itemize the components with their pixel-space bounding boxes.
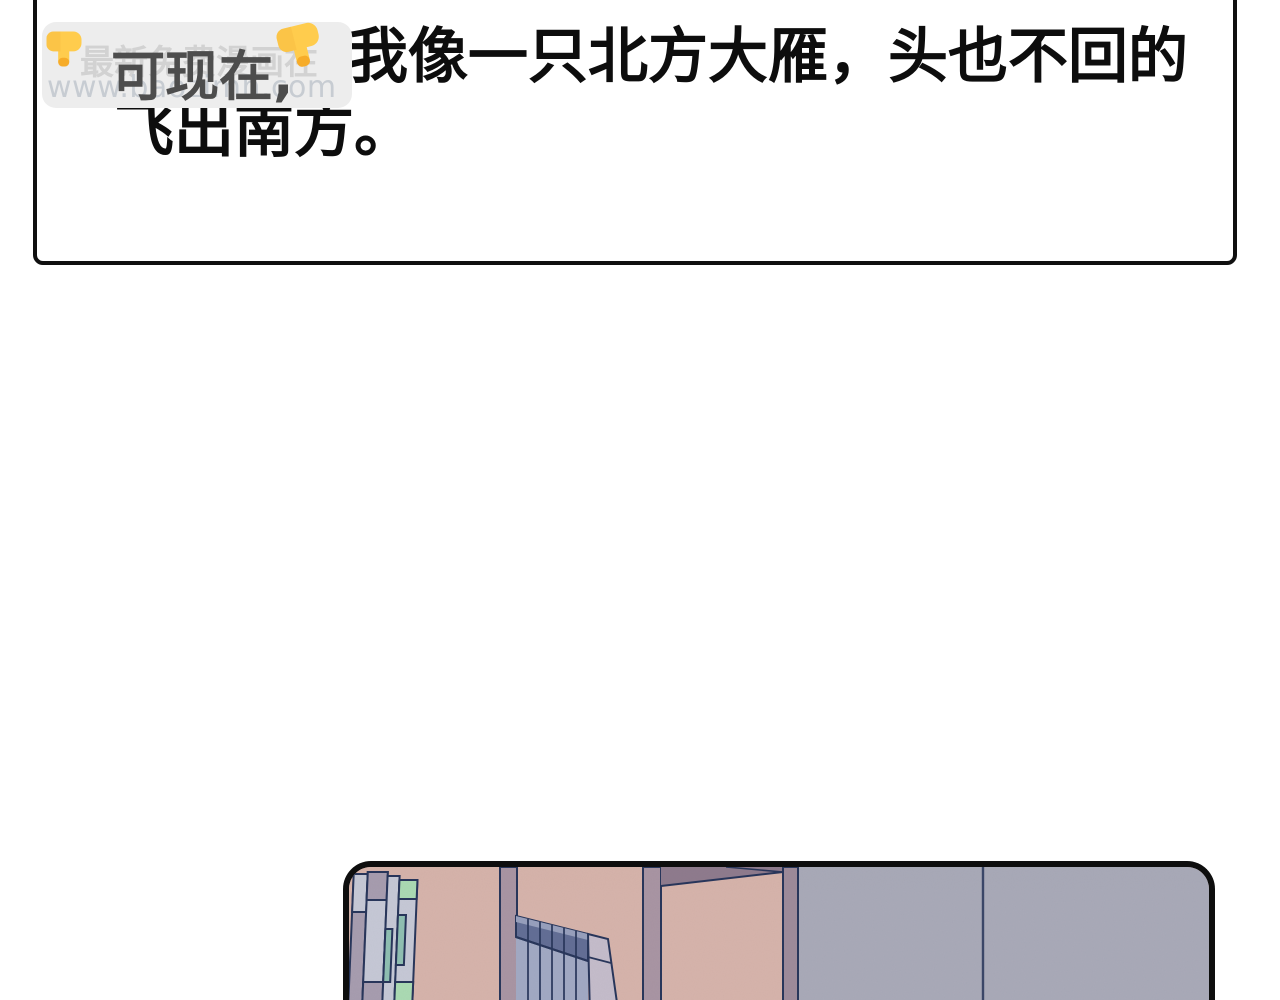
comic-reader-page: 可现在, 最新免费漫画在 www.baozimh.com 我像一只北方大 (0, 0, 1280, 1000)
grain-texture (349, 867, 1209, 1000)
bookshelf-scene (349, 867, 1209, 1000)
caption-box: 可现在, 最新免费漫画在 www.baozimh.com 我像一只北方大 (33, 0, 1237, 265)
caption-prefix-text: 可现在, (111, 32, 294, 111)
point-down-emoji (43, 28, 85, 70)
comic-panel (343, 861, 1215, 1000)
caption-line-1: 我像一只北方大雁，头也不回的 (348, 26, 1188, 90)
